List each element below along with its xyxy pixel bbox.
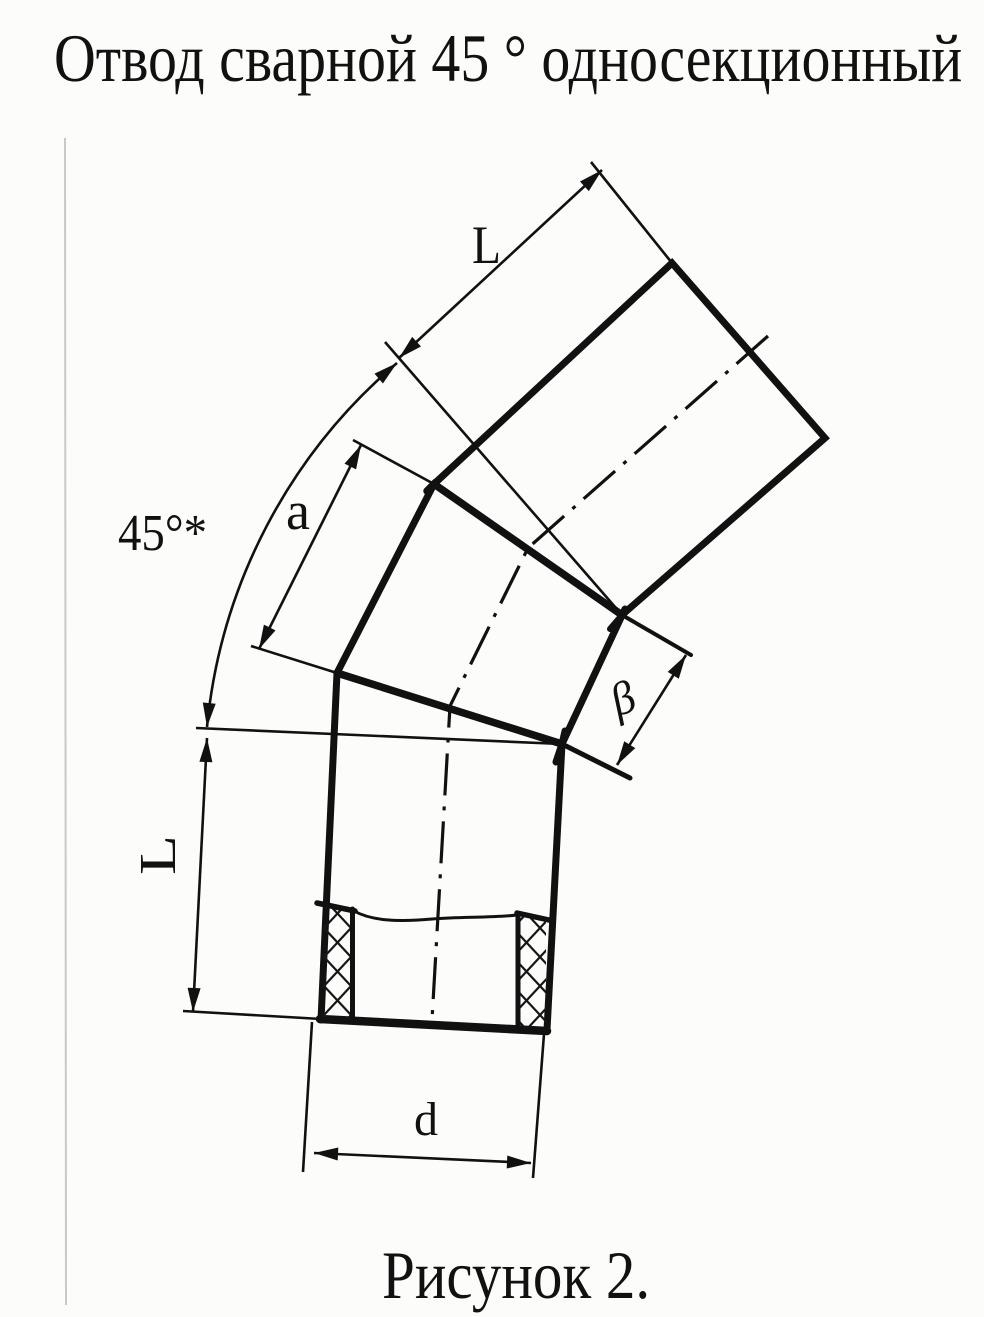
svg-text:β: β: [601, 670, 642, 726]
svg-text:45°*: 45°*: [118, 505, 207, 562]
svg-text:L: L: [472, 215, 501, 275]
svg-text:L: L: [130, 835, 187, 875]
svg-text:d: d: [414, 1093, 438, 1146]
svg-text:a: a: [286, 481, 310, 541]
